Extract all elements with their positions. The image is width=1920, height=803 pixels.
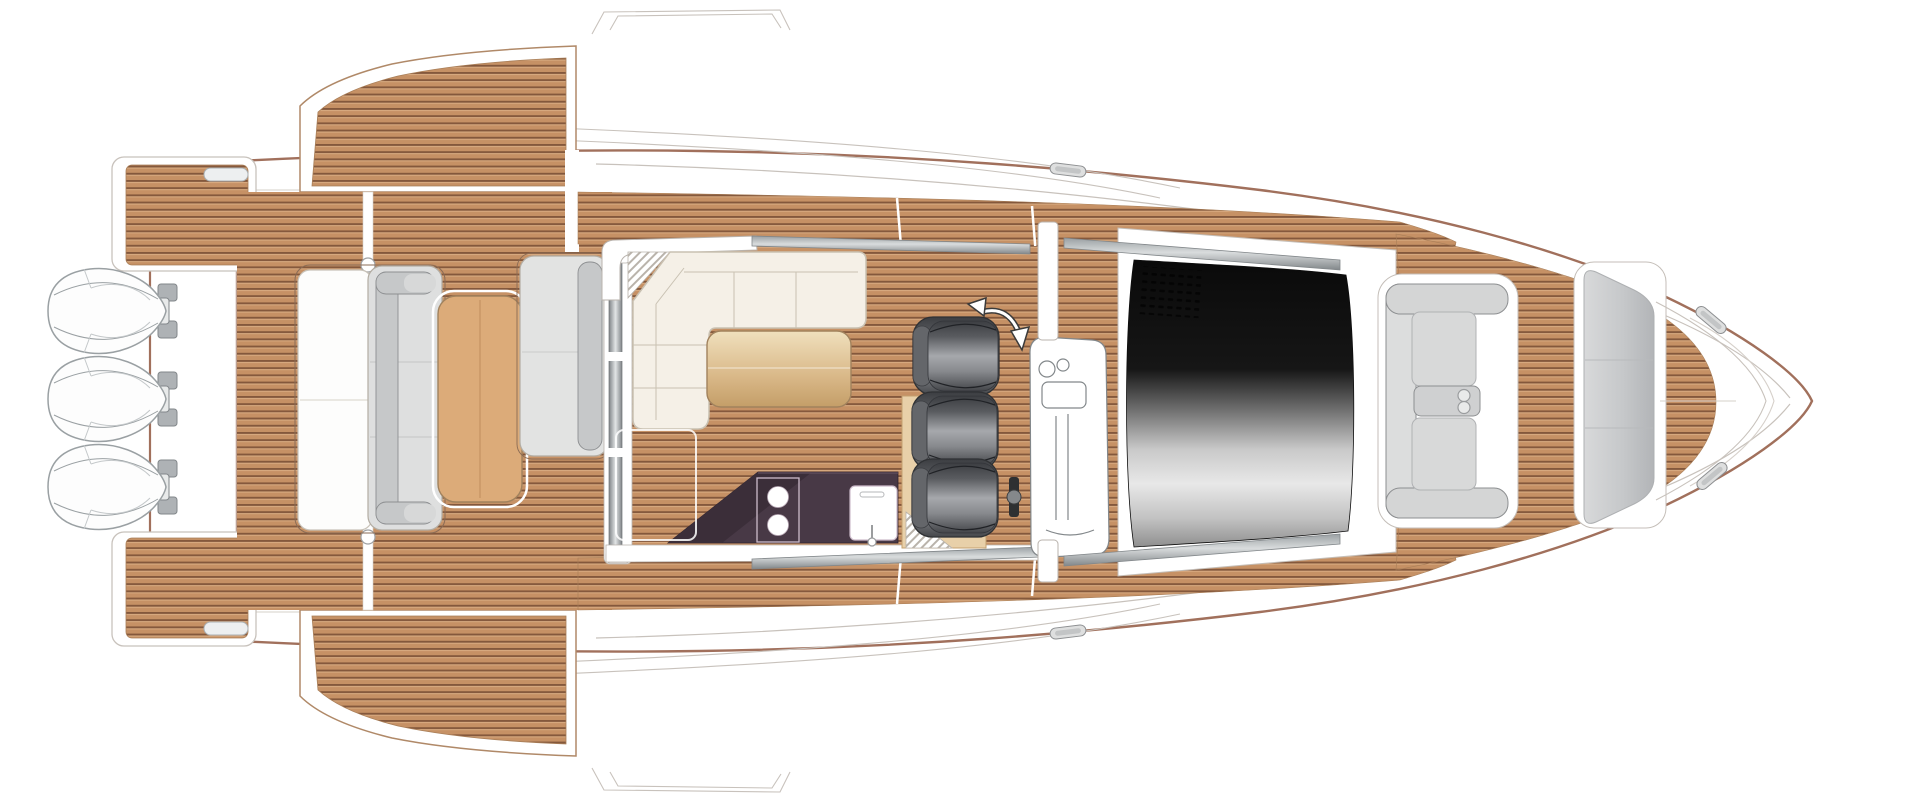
- stove-burner: [768, 515, 789, 536]
- bow-armrest: [1414, 386, 1480, 416]
- bow-seat-arm-bottom: [1386, 488, 1508, 518]
- windshield-post-top: [1038, 222, 1058, 340]
- deck-socket: [361, 530, 375, 544]
- bow-seat-back: [1386, 284, 1416, 518]
- bow-sunpad: [1574, 262, 1666, 528]
- side-gate-gap: [565, 150, 579, 252]
- platform-handle: [204, 168, 248, 181]
- bow-seating: [1378, 274, 1518, 528]
- cup-holder: [1458, 390, 1470, 402]
- cup-holder: [1458, 402, 1470, 414]
- salon-table: [707, 331, 851, 407]
- bow-cushion: [1412, 418, 1476, 490]
- helm-seat: [912, 392, 998, 470]
- cockpit-table: [433, 291, 527, 507]
- stove-burner: [768, 487, 789, 508]
- yacht-deck-plan: [0, 0, 1920, 803]
- platform-handle: [204, 622, 248, 635]
- swim-platform-bottom: [112, 532, 256, 646]
- cockpit-bench-backrest: [578, 262, 602, 450]
- aft-backrest: [376, 272, 398, 524]
- swim-platform-top: [112, 157, 256, 271]
- vent-grille: [1137, 266, 1202, 318]
- door-handle-bracket: [1007, 477, 1021, 517]
- helm-console: [1030, 337, 1109, 557]
- bow-seat-arm-top: [1386, 284, 1508, 314]
- aft-bench: [295, 265, 445, 533]
- bow-cushion: [1412, 312, 1476, 386]
- deck-plan-canvas: [0, 0, 1920, 803]
- cockpit-bench: [517, 253, 611, 459]
- helm-seat: [912, 459, 998, 537]
- sink: [850, 486, 897, 546]
- helm-seat-rotatable: [913, 317, 999, 395]
- windshield-post-bottom: [1038, 540, 1058, 582]
